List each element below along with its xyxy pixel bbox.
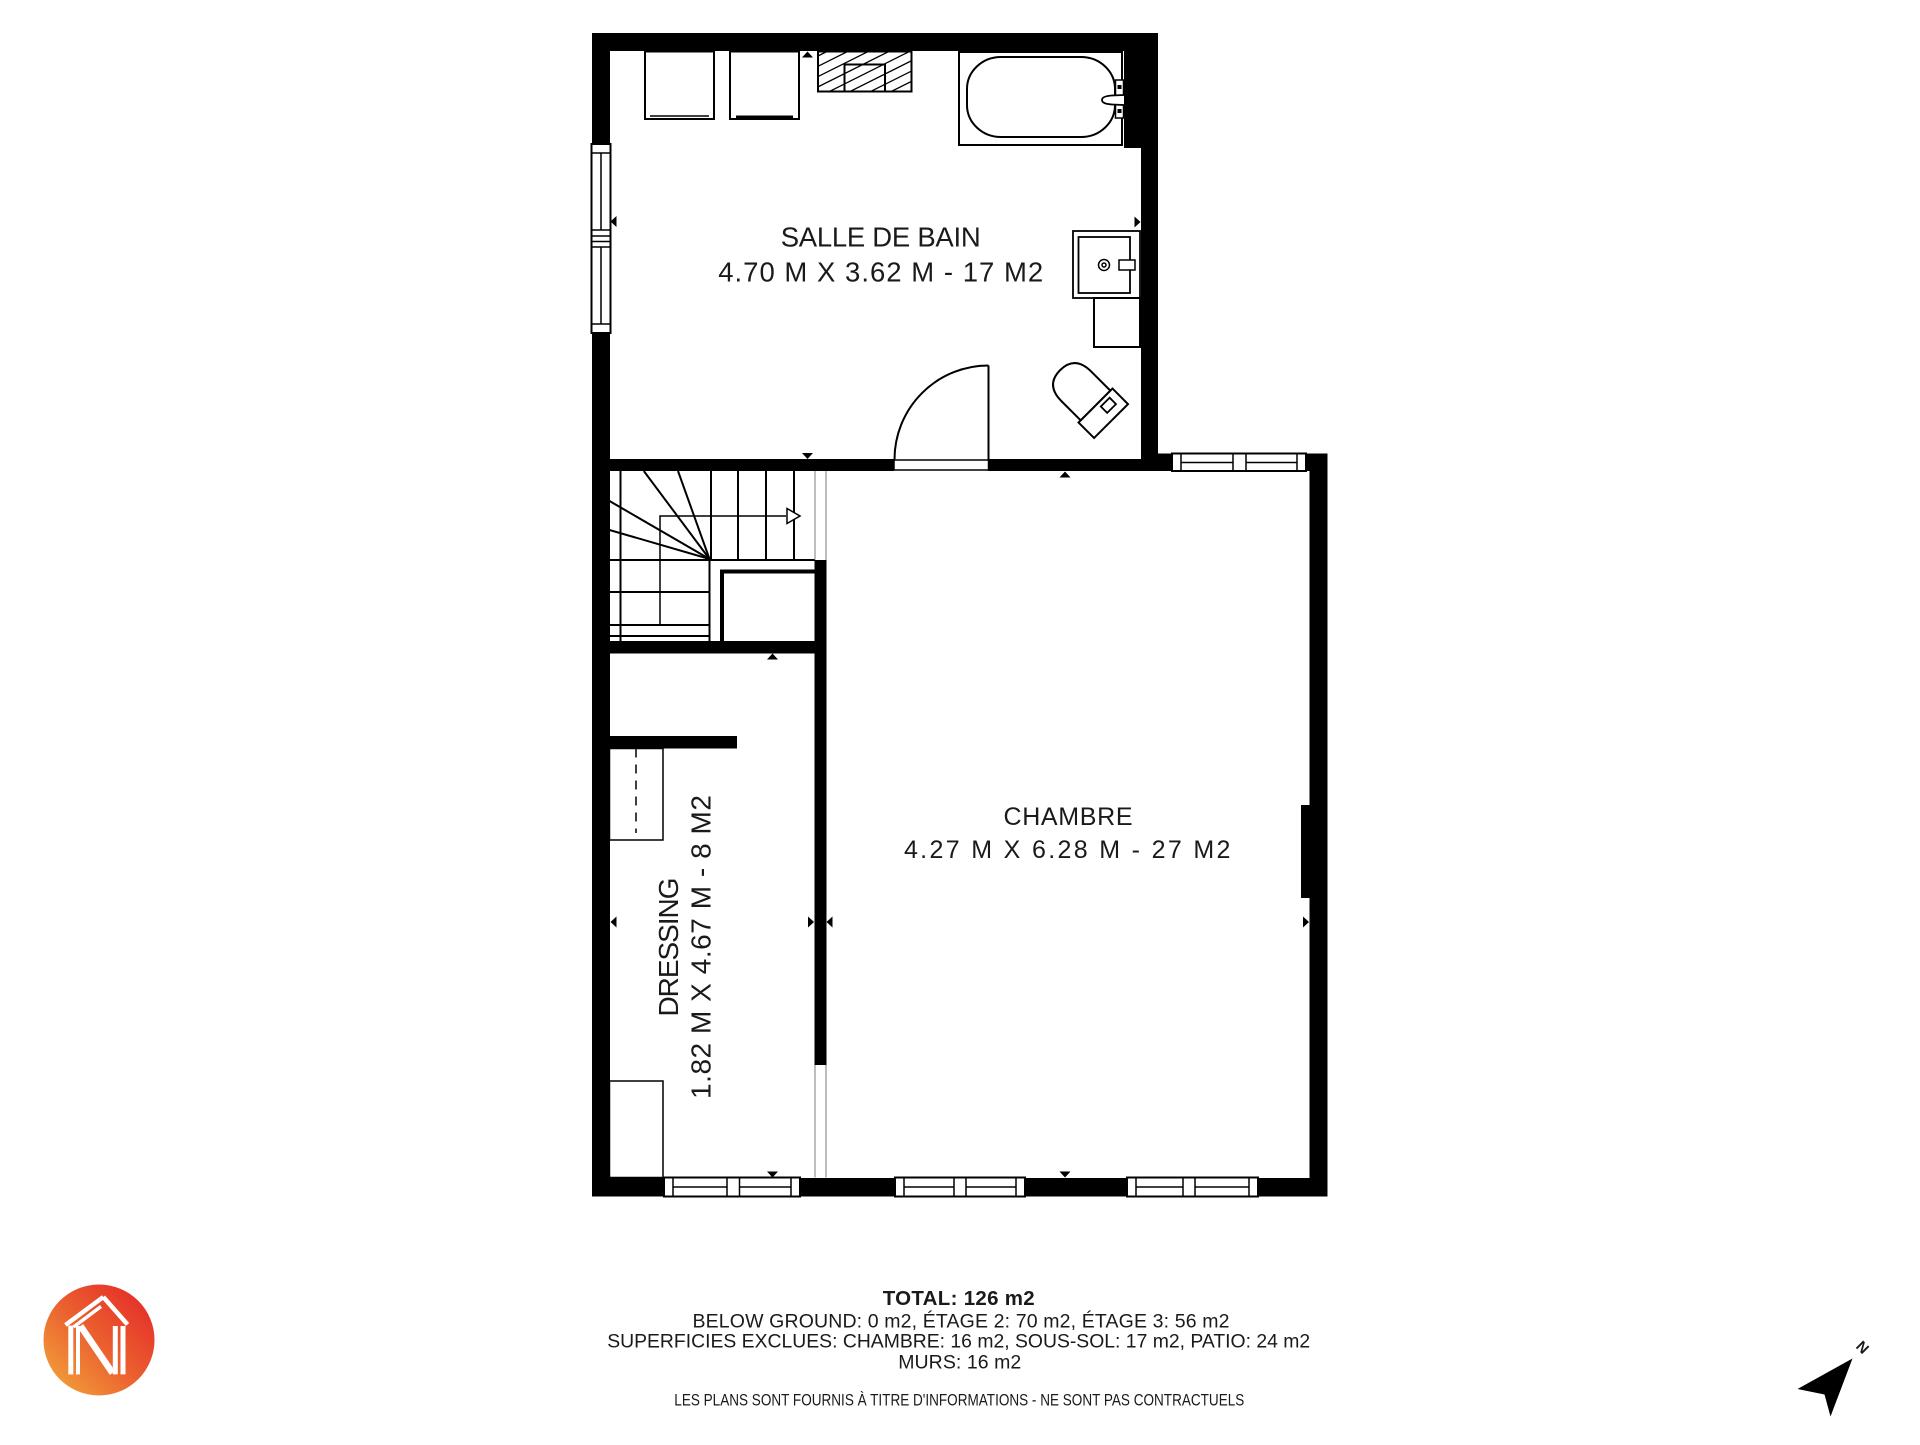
svg-text:LES PLANS SONT FOURNIS À TITRE: LES PLANS SONT FOURNIS À TITRE D'INFORMA… <box>674 1391 1244 1410</box>
svg-text:BELOW GROUND: 0 m2, ÉTAGE 2: 7: BELOW GROUND: 0 m2, ÉTAGE 2: 70 m2, ÉTAG… <box>693 1310 1230 1333</box>
svg-text:SUPERFICIES EXCLUES: CHAMBRE:: SUPERFICIES EXCLUES: CHAMBRE: 16 m2, SOU… <box>607 1331 1310 1353</box>
svg-text:4.27 M X 6.28 M - 27 M2: 4.27 M X 6.28 M - 27 M2 <box>904 836 1231 864</box>
svg-text:MURS: 16 m2: MURS: 16 m2 <box>898 1352 1021 1374</box>
svg-text:DRESSING: DRESSING <box>653 878 684 1017</box>
svg-text:CHAMBRE: CHAMBRE <box>1004 803 1133 831</box>
svg-text:SALLE DE BAIN: SALLE DE BAIN <box>781 221 981 252</box>
svg-text:4.70 M X 3.62 M - 17 M2: 4.70 M X 3.62 M - 17 M2 <box>718 256 1043 287</box>
svg-text:TOTAL: 126 m2: TOTAL: 126 m2 <box>883 1287 1035 1310</box>
svg-text:1.82 M X 4.67 M - 8 M2: 1.82 M X 4.67 M - 8 M2 <box>686 795 717 1099</box>
